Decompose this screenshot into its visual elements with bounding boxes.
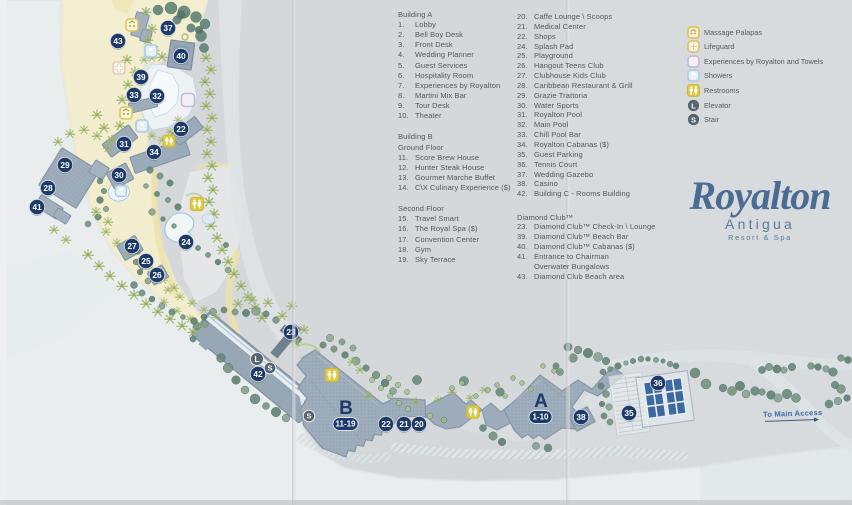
svg-text:28: 28 (43, 183, 53, 193)
svg-text:34: 34 (149, 147, 159, 157)
svg-text:39: 39 (136, 72, 146, 82)
svg-text:35: 35 (624, 408, 634, 418)
svg-text:32: 32 (152, 91, 162, 101)
svg-text:A: A (534, 391, 548, 412)
svg-text:11-19: 11-19 (335, 420, 356, 429)
svg-text:42: 42 (253, 369, 263, 379)
svg-text:20: 20 (414, 419, 424, 429)
svg-text:L: L (254, 354, 259, 364)
svg-text:40: 40 (176, 51, 186, 61)
svg-text:26: 26 (152, 270, 162, 280)
svg-text:41: 41 (32, 202, 42, 212)
svg-text:1-10: 1-10 (532, 413, 549, 422)
svg-text:27: 27 (127, 241, 137, 251)
svg-text:S: S (691, 115, 696, 124)
svg-text:25: 25 (141, 256, 151, 266)
svg-text:30: 30 (114, 170, 124, 180)
svg-text:43: 43 (113, 36, 123, 46)
svg-text:36: 36 (653, 378, 663, 388)
svg-text:38: 38 (576, 412, 586, 422)
svg-text:31: 31 (119, 139, 129, 149)
svg-text:37: 37 (163, 23, 173, 33)
svg-text:24: 24 (181, 237, 191, 247)
svg-text:L: L (691, 101, 696, 110)
svg-text:S: S (267, 364, 272, 373)
svg-text:21: 21 (399, 419, 409, 429)
svg-text:S: S (306, 412, 311, 421)
svg-text:22: 22 (176, 124, 186, 134)
svg-text:B: B (339, 398, 353, 419)
svg-text:29: 29 (60, 160, 70, 170)
svg-text:22: 22 (381, 419, 391, 429)
svg-text:33: 33 (129, 90, 139, 100)
